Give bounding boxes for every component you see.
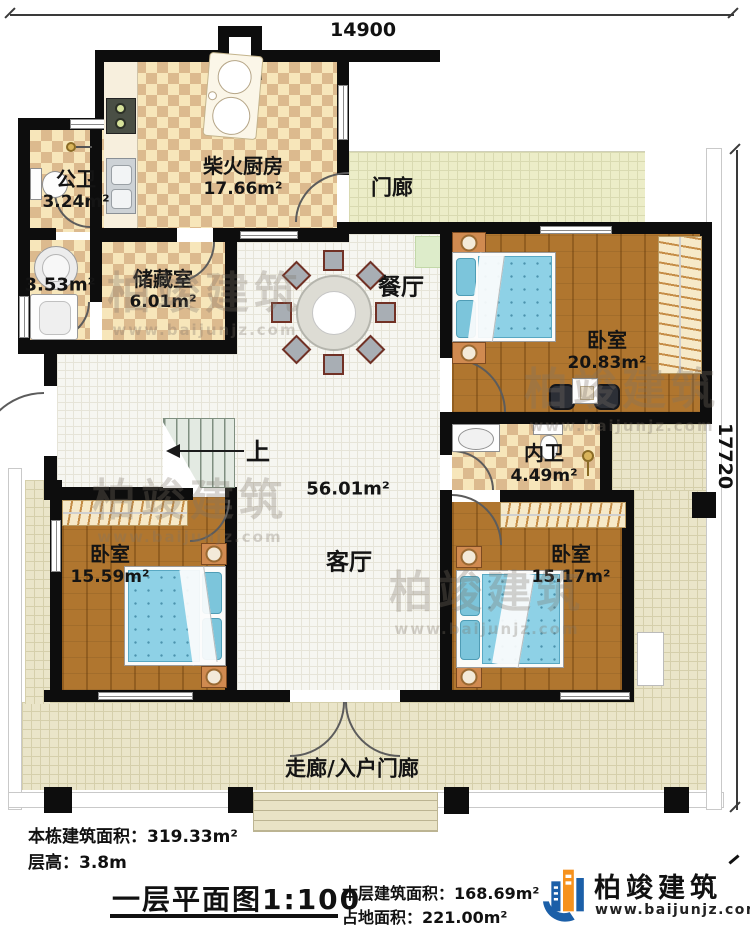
room-name: 餐厅	[378, 274, 424, 301]
dimension-label-right: 17720	[714, 421, 736, 491]
room-label-kitchen: 柴火厨房 17.66m²	[203, 155, 283, 199]
pillow	[456, 258, 476, 296]
floor-drain	[66, 142, 76, 152]
dining-table	[296, 275, 372, 351]
wall	[500, 490, 634, 502]
room-name: 客厅	[326, 549, 372, 576]
shower-pipe	[587, 462, 589, 476]
stairs-direction-arrow	[166, 444, 180, 458]
window	[338, 85, 348, 140]
window	[560, 692, 630, 700]
land-area-row: 占地面积：221.00m²	[342, 904, 507, 928]
room-label-storage: 储藏室 6.01m²	[129, 268, 196, 312]
room-name: 卧室	[568, 329, 647, 353]
nightstand	[201, 543, 227, 565]
building-area-label: 本栋建筑面积：	[28, 827, 147, 847]
column	[228, 787, 253, 813]
column	[692, 492, 716, 518]
entry-steps	[253, 792, 438, 832]
dining-table-top	[312, 291, 356, 335]
window	[98, 692, 193, 700]
room-area: 3.24m²	[42, 192, 109, 212]
wall	[225, 242, 237, 345]
plan-title: 一层平面图1:100	[112, 878, 361, 918]
stove-small-hole	[208, 91, 218, 101]
washer-drum	[39, 301, 71, 335]
room-area: 20.83m²	[568, 353, 647, 373]
column	[444, 787, 469, 814]
room-name: 卧室	[532, 543, 611, 567]
window	[51, 520, 61, 572]
floor-area-row: 本层建筑面积：168.69m²	[342, 880, 539, 904]
stove-pot-hole	[211, 95, 252, 136]
wall	[18, 228, 56, 240]
window	[540, 226, 612, 234]
dimension-tick	[727, 7, 738, 18]
room-label-porch: 门廊	[371, 176, 413, 201]
sink-basin	[111, 189, 132, 209]
room-area: 4.49m²	[510, 466, 577, 486]
room-name: 储藏室	[129, 268, 196, 292]
burner	[115, 103, 126, 114]
column	[44, 787, 72, 813]
room-name: 公卫	[42, 168, 109, 192]
wall	[18, 340, 237, 354]
stairs-up-text: 上	[246, 438, 270, 466]
dimension-line-top	[10, 14, 734, 16]
room-area-living: 56.01m²	[306, 478, 390, 499]
room-label-inner-bath: 内卫 4.49m²	[510, 442, 577, 486]
dimension-tick	[729, 143, 740, 154]
room-label-bedroom1: 卧室 20.83m²	[568, 329, 647, 373]
room-area: 15.17m²	[532, 567, 611, 587]
side-table	[572, 378, 598, 404]
pillow	[460, 576, 480, 616]
porch-edge-line	[349, 151, 645, 152]
wall	[440, 490, 452, 702]
room-name: 内卫	[510, 442, 577, 466]
land-area-label: 占地面积：	[342, 908, 422, 927]
dimension-tick	[729, 801, 740, 812]
dimension-line-right	[736, 150, 738, 810]
wall	[440, 412, 712, 424]
dining-chair	[375, 302, 396, 323]
floor-area-value: 168.69m²	[454, 884, 539, 903]
room-area: 6.01m²	[129, 292, 196, 312]
wall	[50, 480, 62, 702]
wardrobe	[62, 500, 188, 526]
firewood-stove	[202, 52, 263, 140]
dining-chair	[323, 250, 344, 271]
stairs-up-label: 上	[246, 438, 270, 466]
ac-unit	[637, 632, 664, 686]
shower-drain	[582, 450, 594, 462]
room-name: 柴火厨房	[203, 155, 283, 179]
room-label-bedroom2: 卧室 15.59m²	[71, 543, 150, 587]
room-name: 卧室	[71, 543, 150, 567]
plan-title-text: 一层平面图	[112, 883, 262, 916]
toilet-tank	[30, 168, 42, 200]
logo-icon	[538, 864, 588, 922]
kitchen-sink	[106, 158, 136, 214]
drain-pipe	[76, 146, 92, 148]
room-name: 门廊	[371, 176, 413, 201]
floor-height-label: 层高：	[28, 853, 79, 873]
nightstand	[456, 666, 482, 688]
nightstand	[201, 666, 227, 688]
terrace-right-floor	[612, 424, 708, 490]
title-underline	[110, 914, 338, 918]
dimension-label-top: 14900	[330, 19, 396, 41]
wall	[102, 228, 177, 242]
room-label-public-bath: 公卫 3.24m²	[42, 168, 109, 212]
stairs-direction-line	[178, 450, 244, 452]
door-arc-side-exit	[0, 392, 44, 458]
building-area-row: 本栋建筑面积：319.33m²	[28, 822, 238, 847]
dining-chair	[271, 302, 292, 323]
pillow	[460, 620, 480, 660]
side-table-top	[580, 386, 594, 400]
room-label-living: 客厅	[326, 549, 372, 576]
wardrobe	[500, 502, 626, 528]
floor-area-label: 本层建筑面积：	[342, 884, 454, 903]
room-name: 走廊/入户门廊	[285, 757, 419, 782]
land-area-value: 221.00m²	[422, 908, 507, 927]
floor-height-value: 3.8m	[79, 853, 127, 873]
nightstand	[456, 546, 482, 568]
logo-tick	[728, 854, 739, 864]
wall	[440, 234, 452, 358]
burner	[115, 118, 126, 129]
dining-chair	[323, 354, 344, 375]
bath-sink	[458, 428, 494, 450]
nightstand	[452, 232, 486, 254]
floor-height-row: 层高：3.8m	[28, 848, 127, 873]
wardrobe	[658, 236, 702, 374]
room-area: 56.01m²	[306, 478, 390, 499]
room-label-dining: 餐厅	[378, 274, 424, 301]
room-label-corridor: 走廊/入户门廊	[285, 757, 419, 782]
room-area: 17.66m²	[203, 179, 283, 199]
wall	[44, 354, 57, 386]
walkway-band-left	[8, 468, 22, 810]
sink-basin	[111, 165, 132, 185]
building-area-value: 319.33m²	[147, 827, 238, 847]
logo-building-icon	[538, 864, 588, 922]
nightstand	[452, 342, 486, 364]
dimension-tick	[4, 7, 15, 18]
room-label-utility: 3.53m²	[24, 274, 95, 295]
logo-url: www.baijunjz.com	[595, 902, 750, 918]
stove-pot-hole	[216, 59, 253, 96]
room-area: 3.53m²	[24, 274, 95, 295]
window	[240, 231, 298, 239]
gas-stove	[106, 98, 136, 134]
wall	[440, 424, 452, 455]
wall	[237, 690, 290, 702]
terrace-left-floor	[25, 480, 50, 704]
toilet-tank	[533, 424, 563, 435]
logo-name: 柏竣建筑	[594, 866, 722, 905]
floor-plan-page: 上 公卫 3.24m² 3.53m² 储藏室 6.01m² 柴火厨房 17.66…	[0, 0, 750, 933]
wall	[44, 487, 193, 500]
washing-machine	[30, 294, 78, 340]
room-label-bedroom3: 卧室 15.17m²	[532, 543, 611, 587]
window	[19, 296, 29, 338]
wall	[337, 222, 712, 234]
room-area: 15.59m²	[71, 567, 150, 587]
column	[664, 787, 689, 813]
wall	[95, 50, 440, 62]
